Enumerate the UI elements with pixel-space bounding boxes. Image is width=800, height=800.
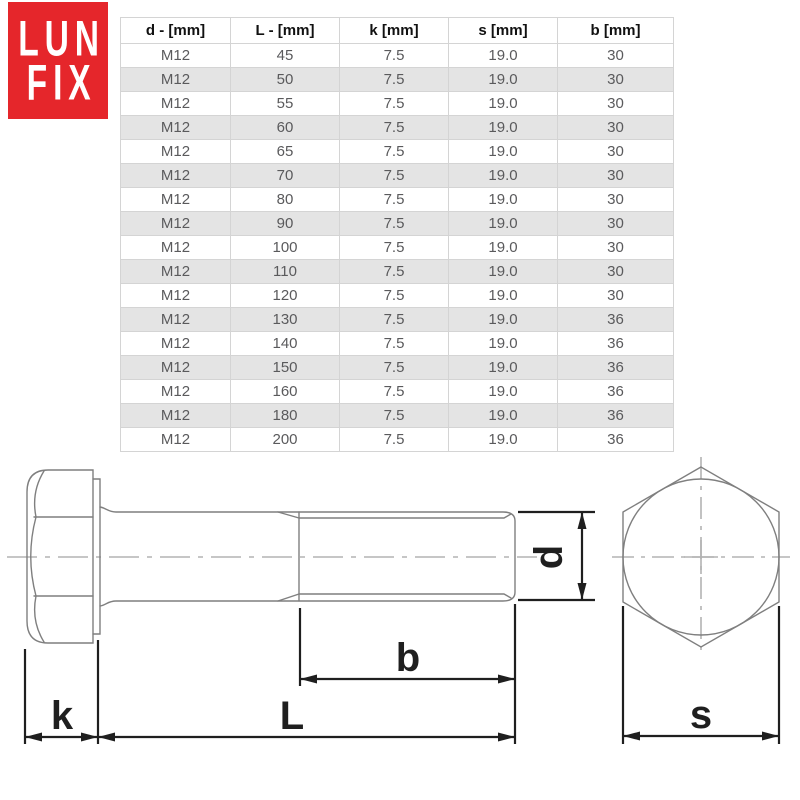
table-cell: M12 — [121, 404, 231, 428]
table-cell: 36 — [558, 380, 674, 404]
table-cell: M12 — [121, 212, 231, 236]
table-header-cell: L - [mm] — [231, 18, 340, 44]
table-cell: 19.0 — [449, 428, 558, 452]
table-row: M12657.519.030 — [121, 140, 674, 164]
table-cell: 30 — [558, 188, 674, 212]
table-row: M12607.519.030 — [121, 116, 674, 140]
table-cell: 7.5 — [340, 260, 449, 284]
table-cell: 65 — [231, 140, 340, 164]
table-cell: 60 — [231, 116, 340, 140]
table-header-cell: b [mm] — [558, 18, 674, 44]
table-cell: 19.0 — [449, 332, 558, 356]
table-cell: 30 — [558, 260, 674, 284]
table-cell: 7.5 — [340, 308, 449, 332]
table-cell: 30 — [558, 284, 674, 308]
table-cell: M12 — [121, 428, 231, 452]
table-cell: 7.5 — [340, 68, 449, 92]
table-cell: 7.5 — [340, 212, 449, 236]
table-cell: M12 — [121, 164, 231, 188]
table-cell: 7.5 — [340, 428, 449, 452]
table-row: M12707.519.030 — [121, 164, 674, 188]
table-cell: 70 — [231, 164, 340, 188]
table-header-cell: k [mm] — [340, 18, 449, 44]
table-cell: 7.5 — [340, 188, 449, 212]
table-cell: 7.5 — [340, 140, 449, 164]
table-cell: 7.5 — [340, 356, 449, 380]
table-cell: 7.5 — [340, 116, 449, 140]
table-body: M12457.519.030M12507.519.030M12557.519.0… — [121, 44, 674, 452]
table-cell: 7.5 — [340, 404, 449, 428]
bolt-technical-drawing: k L b d s — [0, 450, 800, 800]
table-cell: 30 — [558, 164, 674, 188]
table-row: M12457.519.030 — [121, 44, 674, 68]
table-cell: M12 — [121, 260, 231, 284]
table-cell: 19.0 — [449, 140, 558, 164]
table-cell: 19.0 — [449, 260, 558, 284]
table-cell: M12 — [121, 140, 231, 164]
table-row: M121407.519.036 — [121, 332, 674, 356]
lunfix-logo: LUN FIX — [8, 2, 108, 119]
dimension-table: d - [mm]L - [mm]k [mm]s [mm]b [mm] M1245… — [120, 17, 674, 452]
table-cell: 7.5 — [340, 92, 449, 116]
table-cell: 30 — [558, 140, 674, 164]
dim-label-d: d — [527, 545, 571, 569]
table-cell: 19.0 — [449, 188, 558, 212]
table-cell: 36 — [558, 428, 674, 452]
table-row: M12557.519.030 — [121, 92, 674, 116]
table-cell: M12 — [121, 284, 231, 308]
table-cell: 7.5 — [340, 164, 449, 188]
table-cell: M12 — [121, 92, 231, 116]
table-row: M121007.519.030 — [121, 236, 674, 260]
table-cell: M12 — [121, 188, 231, 212]
table-cell: 110 — [231, 260, 340, 284]
dim-label-b: b — [396, 636, 420, 680]
table-cell: 30 — [558, 212, 674, 236]
table-cell: 36 — [558, 308, 674, 332]
product-dimension-sheet: LUN FIX d - [mm]L - [mm]k [mm]s [mm]b [m… — [0, 0, 800, 800]
table-row: M12807.519.030 — [121, 188, 674, 212]
table-cell: 19.0 — [449, 404, 558, 428]
table-cell: 19.0 — [449, 68, 558, 92]
table-row: M12907.519.030 — [121, 212, 674, 236]
table-cell: 7.5 — [340, 284, 449, 308]
table-cell: 120 — [231, 284, 340, 308]
dim-label-L: L — [280, 694, 304, 738]
table-cell: M12 — [121, 236, 231, 260]
table-cell: 30 — [558, 116, 674, 140]
table-cell: 150 — [231, 356, 340, 380]
table-cell: 36 — [558, 356, 674, 380]
table-cell: 7.5 — [340, 380, 449, 404]
table-cell: 7.5 — [340, 236, 449, 260]
table-cell: 55 — [231, 92, 340, 116]
table-cell: 45 — [231, 44, 340, 68]
table-cell: M12 — [121, 308, 231, 332]
table-row: M121107.519.030 — [121, 260, 674, 284]
table-cell: 19.0 — [449, 380, 558, 404]
table-cell: 30 — [558, 44, 674, 68]
thread-minor-top — [299, 514, 511, 518]
table-cell: 7.5 — [340, 44, 449, 68]
table-cell: 19.0 — [449, 164, 558, 188]
table-cell: 180 — [231, 404, 340, 428]
table-cell: 30 — [558, 68, 674, 92]
table-cell: 19.0 — [449, 212, 558, 236]
table-cell: 19.0 — [449, 284, 558, 308]
table-cell: M12 — [121, 380, 231, 404]
table-cell: 19.0 — [449, 356, 558, 380]
table-cell: 19.0 — [449, 236, 558, 260]
dimension-lines — [25, 512, 779, 744]
table-cell: M12 — [121, 68, 231, 92]
table-cell: 130 — [231, 308, 340, 332]
table-cell: 80 — [231, 188, 340, 212]
table-row: M121207.519.030 — [121, 284, 674, 308]
centerlines — [7, 457, 790, 656]
table-cell: M12 — [121, 116, 231, 140]
table-cell: 50 — [231, 68, 340, 92]
table-header-row: d - [mm]L - [mm]k [mm]s [mm]b [mm] — [121, 18, 674, 44]
table-cell: 140 — [231, 332, 340, 356]
table-row: M121807.519.036 — [121, 404, 674, 428]
dim-label-s: s — [690, 693, 712, 737]
table-row: M121507.519.036 — [121, 356, 674, 380]
table-cell: 200 — [231, 428, 340, 452]
table-cell: 19.0 — [449, 116, 558, 140]
table-cell: 30 — [558, 92, 674, 116]
table-cell: M12 — [121, 44, 231, 68]
dim-label-k: k — [51, 694, 74, 738]
table-cell: 19.0 — [449, 92, 558, 116]
table-header-cell: d - [mm] — [121, 18, 231, 44]
table-cell: 36 — [558, 404, 674, 428]
thread-minor-bottom — [299, 594, 511, 598]
table-cell: M12 — [121, 356, 231, 380]
table-header-cell: s [mm] — [449, 18, 558, 44]
table-row: M121607.519.036 — [121, 380, 674, 404]
table-cell: 7.5 — [340, 332, 449, 356]
table-cell: 100 — [231, 236, 340, 260]
table-cell: M12 — [121, 332, 231, 356]
table-cell: 19.0 — [449, 44, 558, 68]
table-cell: 30 — [558, 236, 674, 260]
table-row: M121307.519.036 — [121, 308, 674, 332]
table-cell: 90 — [231, 212, 340, 236]
table-row: M122007.519.036 — [121, 428, 674, 452]
table-cell: 160 — [231, 380, 340, 404]
table-cell: 36 — [558, 332, 674, 356]
logo-line-2: FIX — [27, 56, 97, 109]
table-row: M12507.519.030 — [121, 68, 674, 92]
table-cell: 19.0 — [449, 308, 558, 332]
